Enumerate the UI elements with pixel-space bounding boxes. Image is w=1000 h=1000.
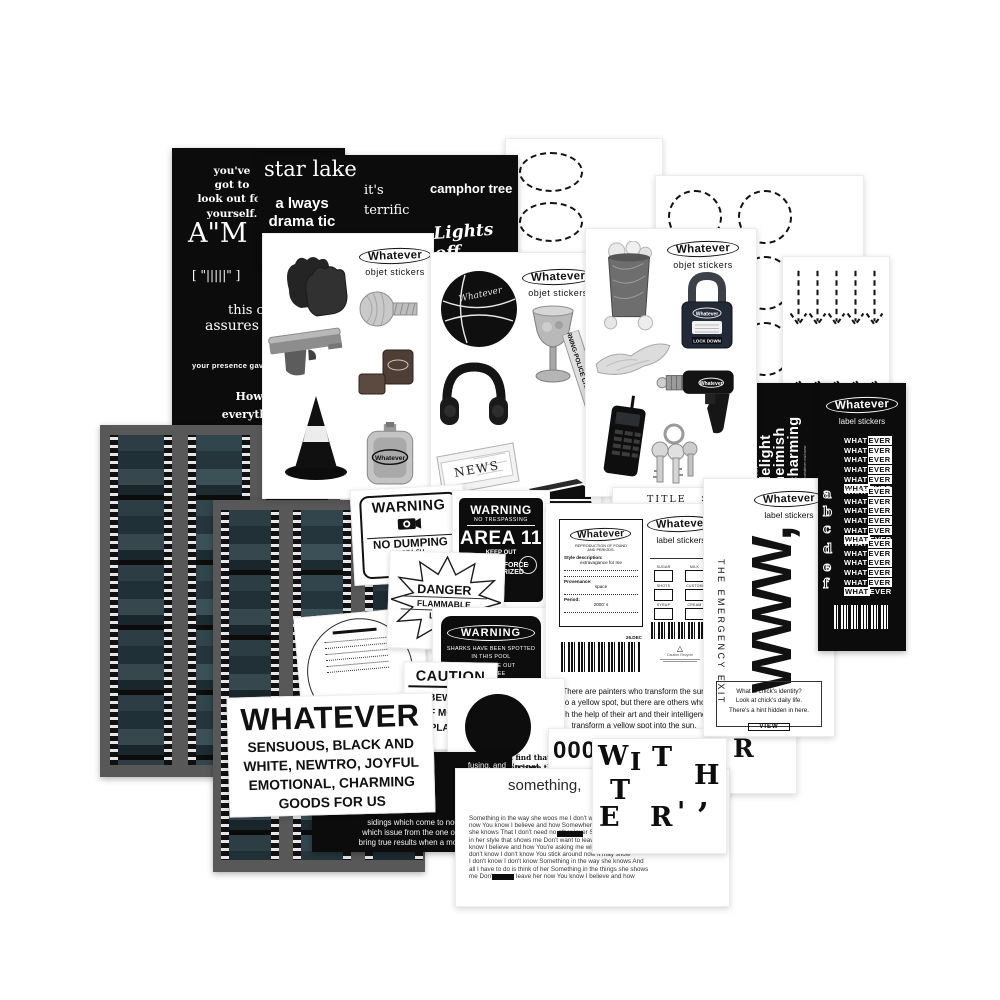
whatever-word-line: WHATEVER [844,579,892,588]
outline-letter: a [823,486,832,504]
area11-big: AREA 11 [459,528,543,550]
whatever-slogan-title: WHATEVER [228,697,433,738]
film-sprockets [110,435,118,765]
barcode-date: 26.DEC [606,635,642,640]
objet-subtitle: objet stickers [521,288,595,298]
padlock-bar-label: LOCK DOWN [693,339,721,344]
barcode-large [561,642,641,672]
redaction-mark [492,874,514,880]
whatever-word-line: WHATEVER [844,517,892,526]
headphones-icon [435,357,513,438]
area11-seal: ✶ [519,556,537,574]
dashed-oval-sticker [519,202,583,242]
checkbox [654,589,673,601]
label-stickers-sheet: Whatever REPRODUCTION OF FOUND AND PERIO… [545,503,724,745]
www-sheet: Whatever label stickers THE EMERGENCY EX… [703,478,835,737]
film-strip [110,435,172,765]
something-title: something, [508,777,581,794]
film-sprockets [188,435,196,765]
checkbox-label: SYRUP [650,603,677,607]
checkbox [685,608,704,620]
quote-its-terrific: it's terrific [364,181,409,220]
whatever-word-line: WHATEVER [844,540,892,549]
pistol-icon [265,320,356,388]
whatever-word-line: WHATEVER [844,498,892,507]
whatever-word-line: WHATEVER [844,559,892,568]
stamp-fine-print [324,627,389,673]
www-big-text: WWW, [739,526,805,692]
whatever-word-line: WHATEVER [844,488,892,497]
whatever-word-line: WHATEVER [844,456,892,465]
outline-letters-def: d e f [823,541,832,594]
redaction-mark [557,831,583,837]
whatever-logo: Whatever [754,490,824,508]
area11-title: WARNING [459,503,543,517]
checkbox-item: SHOTS [650,584,677,601]
apostrophe-sticker: ' [677,797,685,828]
letter-sticker: T [652,742,672,773]
whatever-word-line: WHATEVER [844,527,892,536]
dashed-arrow-down [865,261,884,352]
screw-icon [357,286,421,337]
padlock-label: Whatever [696,312,719,318]
drill-label: Whatever [700,381,723,387]
whatever-word-line: WHATEVER [844,588,892,597]
padlock-icon: WhateverLOCK DOWN [674,269,740,360]
flask-label: Whatever [375,455,406,462]
comma-sticker: , [698,777,709,815]
objet-sheet-3: Whatever objet stickers WhateverLOCK DOW… [585,228,757,497]
outline-letter: c [823,521,832,539]
card-line2: AND PERIODS. [564,548,638,552]
letter-sticker: R [650,802,672,833]
objet-sheet3-header: Whatever objet stickers [658,239,748,270]
whatever-logo: Whatever [826,396,899,415]
whatever-word-line: WHATEVER [844,447,892,456]
whatever-logo: Whatever [667,240,740,259]
checkbox [654,570,673,582]
dashed-arrow-down [808,261,827,352]
checkbox [685,570,704,582]
chick-line1: What is chick's identity? [717,687,821,696]
checkbox-item: SUGAR [650,565,677,582]
dashed-arrow-down [789,261,808,352]
letter-sticker: E [599,802,620,833]
quote-always-dramatic: a lways drama tic [264,195,340,231]
flask-icon: Whatever [359,422,421,491]
scattered-letters-sheet: W I T H T , E R ' [592,738,727,854]
checkbox [685,589,704,601]
view-button: VIEW [748,723,789,731]
whatever-logo: Whatever [359,247,432,266]
product-photo-sticker-pack: you've got to look out for yourself. A"M… [0,0,1000,1000]
delight-heimish-charming: delight heimish charming [759,385,802,485]
whatever-word-line: WHATEVER [844,437,892,446]
chick-line3: There's a hint hidden in here. [717,706,821,715]
barcode-white [834,605,890,629]
whatever-word-line: WHATEVER [844,476,892,485]
shark-warning-title: WARNING [447,625,535,641]
quote-this: this c [228,303,264,318]
black-circle-sticker [465,694,531,760]
outline-letter: b [823,504,832,522]
outline-letter: f [823,576,832,594]
dashed-arrow-down [846,261,865,352]
film-sprockets [221,510,229,860]
whatever-slogan-sticker: WHATEVER SENSUOUS, BLACK AND WHITE, NEWT… [226,692,435,817]
lighter-icon [355,346,421,405]
www-big-text-wrap: WWW, [722,527,822,692]
chick-box: What is chick's identity? Look at chick'… [716,681,822,727]
outline-letter: e [823,559,832,577]
film-frames [118,435,164,765]
whatever-word-group-1: WHATEVER WHATEVERWHATEVERWHATEVERWHATEVE… [844,437,892,494]
film-sprockets [164,435,172,765]
letter-sticker: I [630,747,641,776]
lyric-line: I don't know I don't know Something in t… [469,858,651,865]
whatever-word-group-2: WHATEVER WHATEVERWHATEVERWHATEVERWHATEVE… [844,488,892,545]
checkbox [654,608,673,620]
quote-presence: your presence gave [192,361,268,370]
quote-camphor-tree: camphor tree [430,181,512,196]
black-sheet-subtitle: label stickers [818,417,906,426]
objet-subtitle: objet stickers [359,267,431,277]
objet-sheet2-header: Whatever objet stickers [521,267,595,298]
checkbox-label: SHOTS [650,584,677,588]
chick-line2: Look at chick's daily life. [717,696,821,705]
painters-quote: There are painters who transform the sun… [548,686,720,731]
whatever-url-caption: www.whatever.mail.www [803,385,807,485]
keys-icon [644,422,702,493]
dashed-arrow-down [827,261,846,352]
camera-icon [394,517,425,536]
whatever-word-line: WHATEVER [844,569,892,578]
black-sheet-header: Whatever label stickers [818,395,906,426]
checkbox-item: SYRUP [650,603,677,620]
gloves-icon [277,252,357,327]
reproduction-label-card: Whatever REPRODUCTION OF FOUND AND PERIO… [559,519,643,627]
whatever-slogan-lines: SENSUOUS, BLACK AND WHITE, NEWTRO, JOYFU… [229,733,435,814]
arrow-row-down [789,261,884,352]
objet-sheet-2: Whatever objet stickers Whatever WARNING… [430,252,602,522]
whatever-label-black-sheet: Whatever label stickers WHATEVER WHATEVE… [818,383,906,651]
outline-letters-abc: a b c [823,486,832,539]
checkbox-label: SUGAR [650,565,677,569]
whatever-word-line: WHATEVER [844,507,892,516]
objet-sheet1-header: Whatever objet stickers [359,246,431,277]
quote-star-lake: star lake [264,157,357,181]
traffic-cone-icon [279,390,353,487]
whatever-word-line: WHATEVER [844,550,892,559]
quote-am: A"M [188,218,248,249]
trash-can-icon [598,241,660,340]
letter-sticker: W [598,741,628,772]
whatever-word-line: WHATEVER [844,466,892,475]
whatever-word-group-3: WHATEVER WHATEVERWHATEVERWHATEVERWHATEVE… [844,540,892,597]
basketball-icon: Whatever [435,269,523,354]
objet-sheet-1: Whatever objet stickers Whatever [262,233,434,499]
phone-number-right: R [733,734,754,763]
quote-bars: [ "|||||" ] [192,268,240,282]
lyric-line: all I have to do is think of her Somethi… [469,866,651,873]
whatever-logo: Whatever [522,268,595,287]
dashed-oval-sticker [519,152,583,192]
area11-sub: NO TRESPASSING [459,517,543,523]
barcode-small [651,622,709,639]
whatever-logo: Whatever [570,527,632,542]
outline-letter: d [823,541,832,559]
